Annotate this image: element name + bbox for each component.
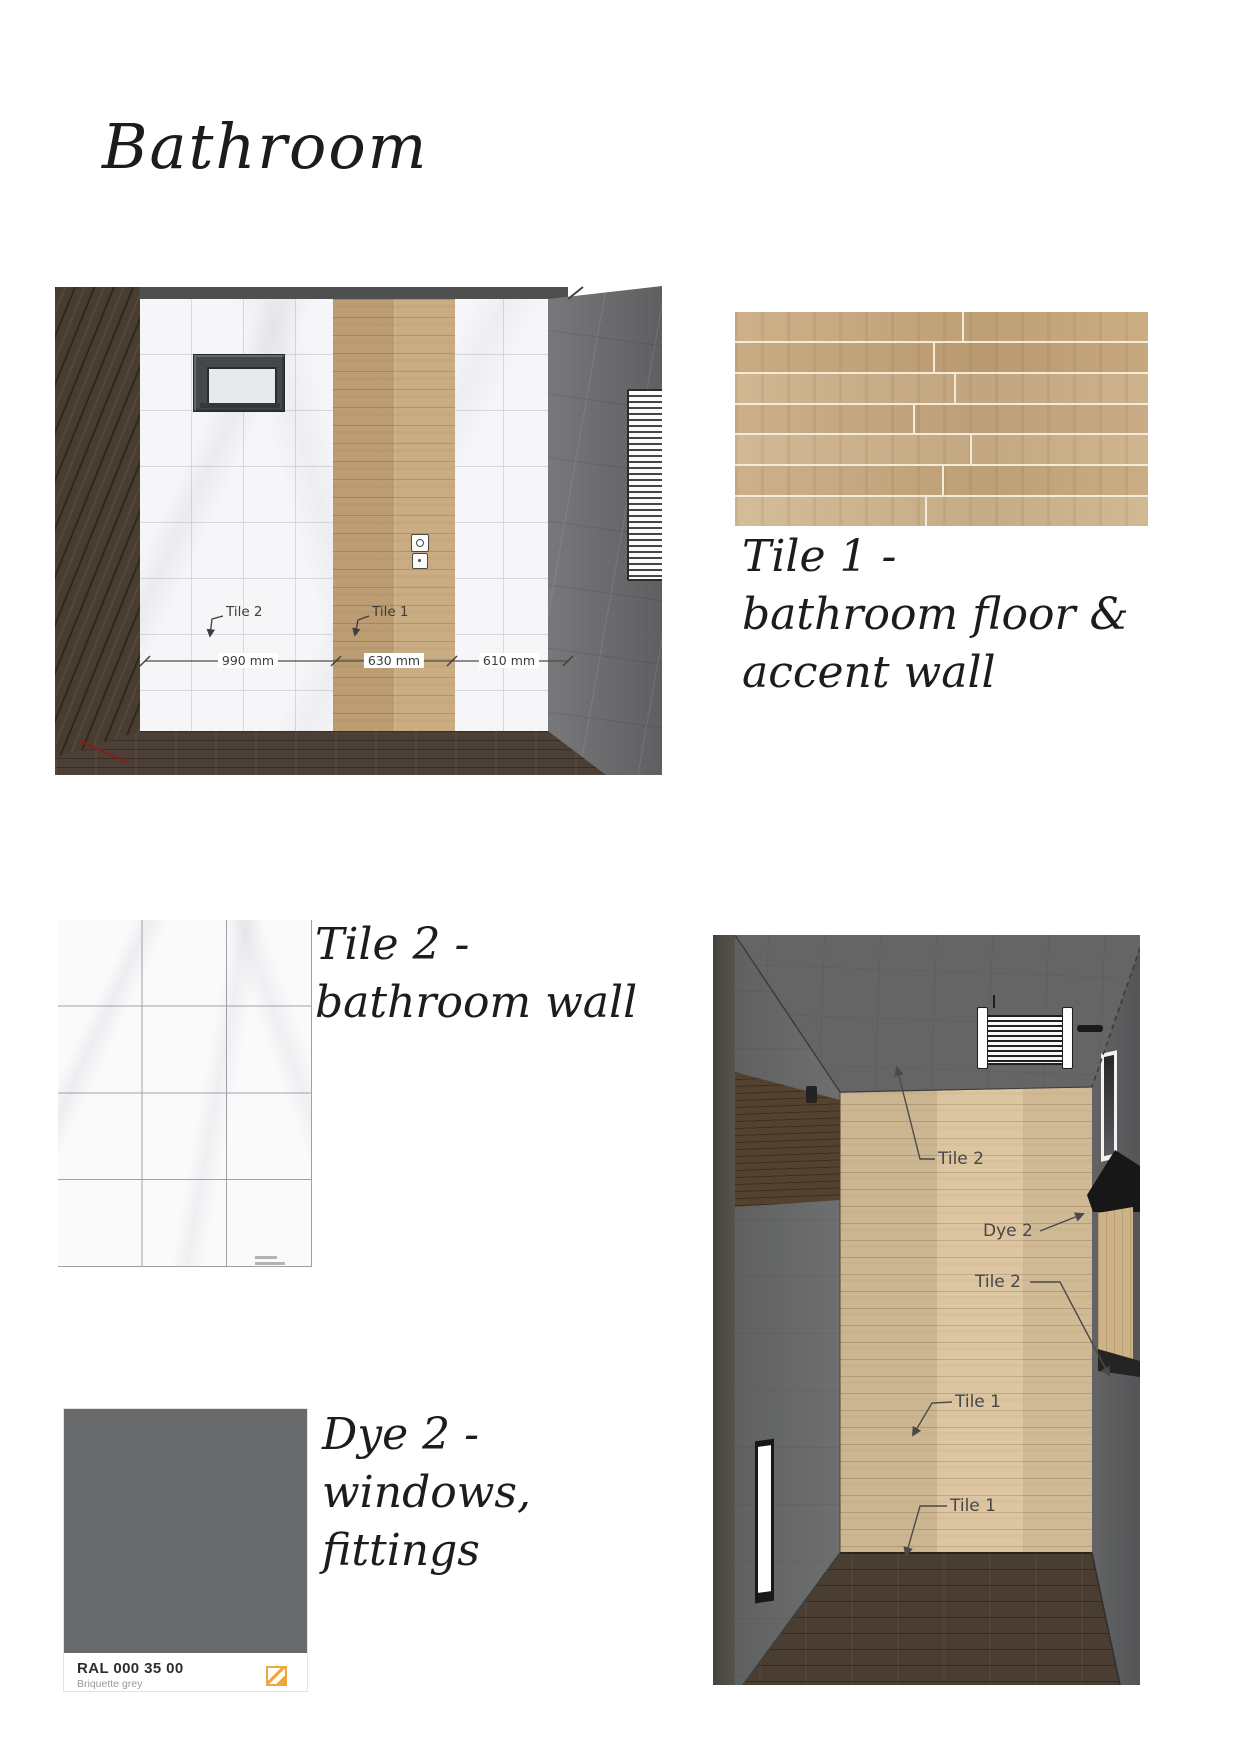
tile1-caption: Tile 1 - bathroom floor & accent wall: [742, 528, 1129, 702]
bathroom-interior-render: Tile 2 Dye 2 Tile 2 Tile 1 Tile 1: [713, 935, 1140, 1685]
plank-joint: [942, 466, 944, 495]
page-title: Bathroom: [102, 110, 428, 183]
dye2-caption-line1: Dye 2 -: [322, 1406, 531, 1464]
tile1-caption-line3: accent wall: [742, 644, 1129, 702]
bathroom-elevation-render: Tile 2 Tile 1 990 mm 630 mm 610 mm: [55, 286, 662, 775]
render-label-tile1-wall: Tile 1: [955, 1392, 1001, 1412]
wood-plank-row: [735, 466, 1148, 497]
tile2-caption-line1: Tile 2 -: [315, 916, 637, 974]
dye2-color-area: [64, 1409, 307, 1653]
plank-joint: [962, 312, 964, 341]
tile2-caption-line2: bathroom wall: [315, 974, 637, 1032]
moodboard-page: Bathroom Tile 2 Tile 1: [0, 0, 1241, 1754]
tile1-caption-line2: bathroom floor &: [742, 586, 1129, 644]
wood-plank-row: [735, 405, 1148, 436]
render-label-dye2: Dye 2: [983, 1221, 1033, 1241]
tile1-wood-swatch: [735, 312, 1148, 526]
wood-plank-row: [735, 312, 1148, 343]
render-label-tile2-ceiling: Tile 2: [938, 1149, 984, 1169]
render-annotation-lines: [713, 935, 1140, 1685]
tile-product-code: [255, 1262, 285, 1265]
render-label-tile1-floor: Tile 1: [950, 1496, 996, 1516]
ral-code: RAL 000 35 00: [77, 1660, 184, 1677]
dim-990mm: 990 mm: [218, 653, 278, 668]
ral-color-name: Briquette grey: [77, 1678, 142, 1690]
wood-plank-row: [735, 497, 1148, 526]
dye2-caption: Dye 2 - windows, fittings: [322, 1406, 531, 1580]
tile-product-code: [255, 1256, 277, 1259]
plank-joint: [913, 405, 915, 434]
wood-plank-row: [735, 435, 1148, 466]
dim-610mm: 610 mm: [479, 653, 539, 668]
plank-joint: [954, 374, 956, 403]
plank-joint: [925, 497, 927, 526]
tile1-caption-line1: Tile 1 -: [742, 528, 1129, 586]
dye2-caption-line3: fittings: [322, 1522, 531, 1580]
ral-logo-icon: [266, 1666, 287, 1686]
tile2-caption: Tile 2 - bathroom wall: [315, 916, 637, 1032]
wood-plank-row: [735, 343, 1148, 374]
tile2-marble-swatch: [58, 920, 312, 1267]
plank-joint: [970, 435, 972, 464]
elevation-annotation-lines: [55, 286, 662, 775]
wood-plank-row: [735, 374, 1148, 405]
render-label-tile2-niche: Tile 2: [975, 1272, 1021, 1292]
dye2-color-card: RAL 000 35 00 Briquette grey: [63, 1408, 308, 1692]
plank-joint: [933, 343, 935, 372]
dye2-caption-line2: windows,: [322, 1464, 531, 1522]
dim-630mm: 630 mm: [364, 653, 424, 668]
